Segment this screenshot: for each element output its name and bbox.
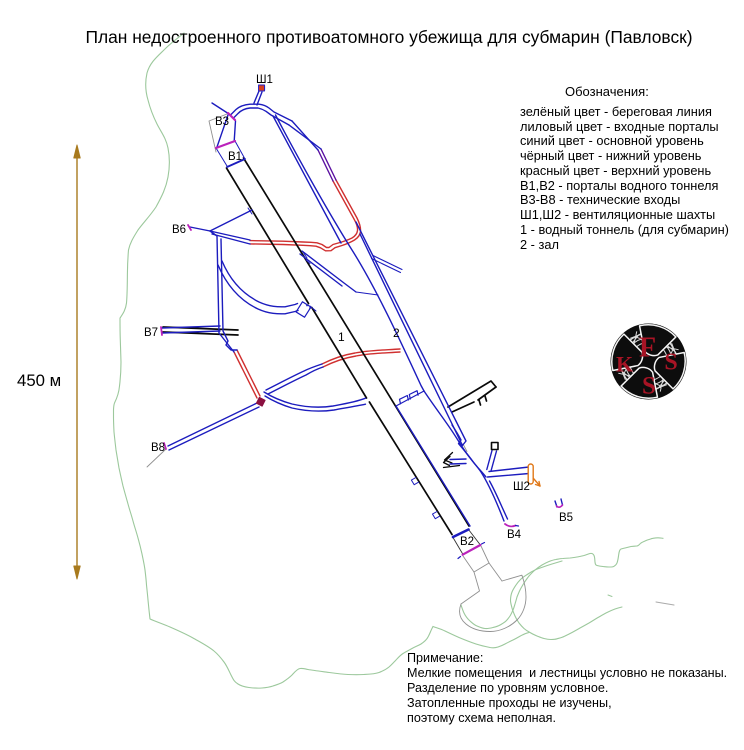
svg-text:S: S xyxy=(642,373,656,400)
svg-text:F: F xyxy=(639,333,656,364)
svg-text:K: K xyxy=(616,352,633,377)
svg-text:S: S xyxy=(664,350,677,376)
